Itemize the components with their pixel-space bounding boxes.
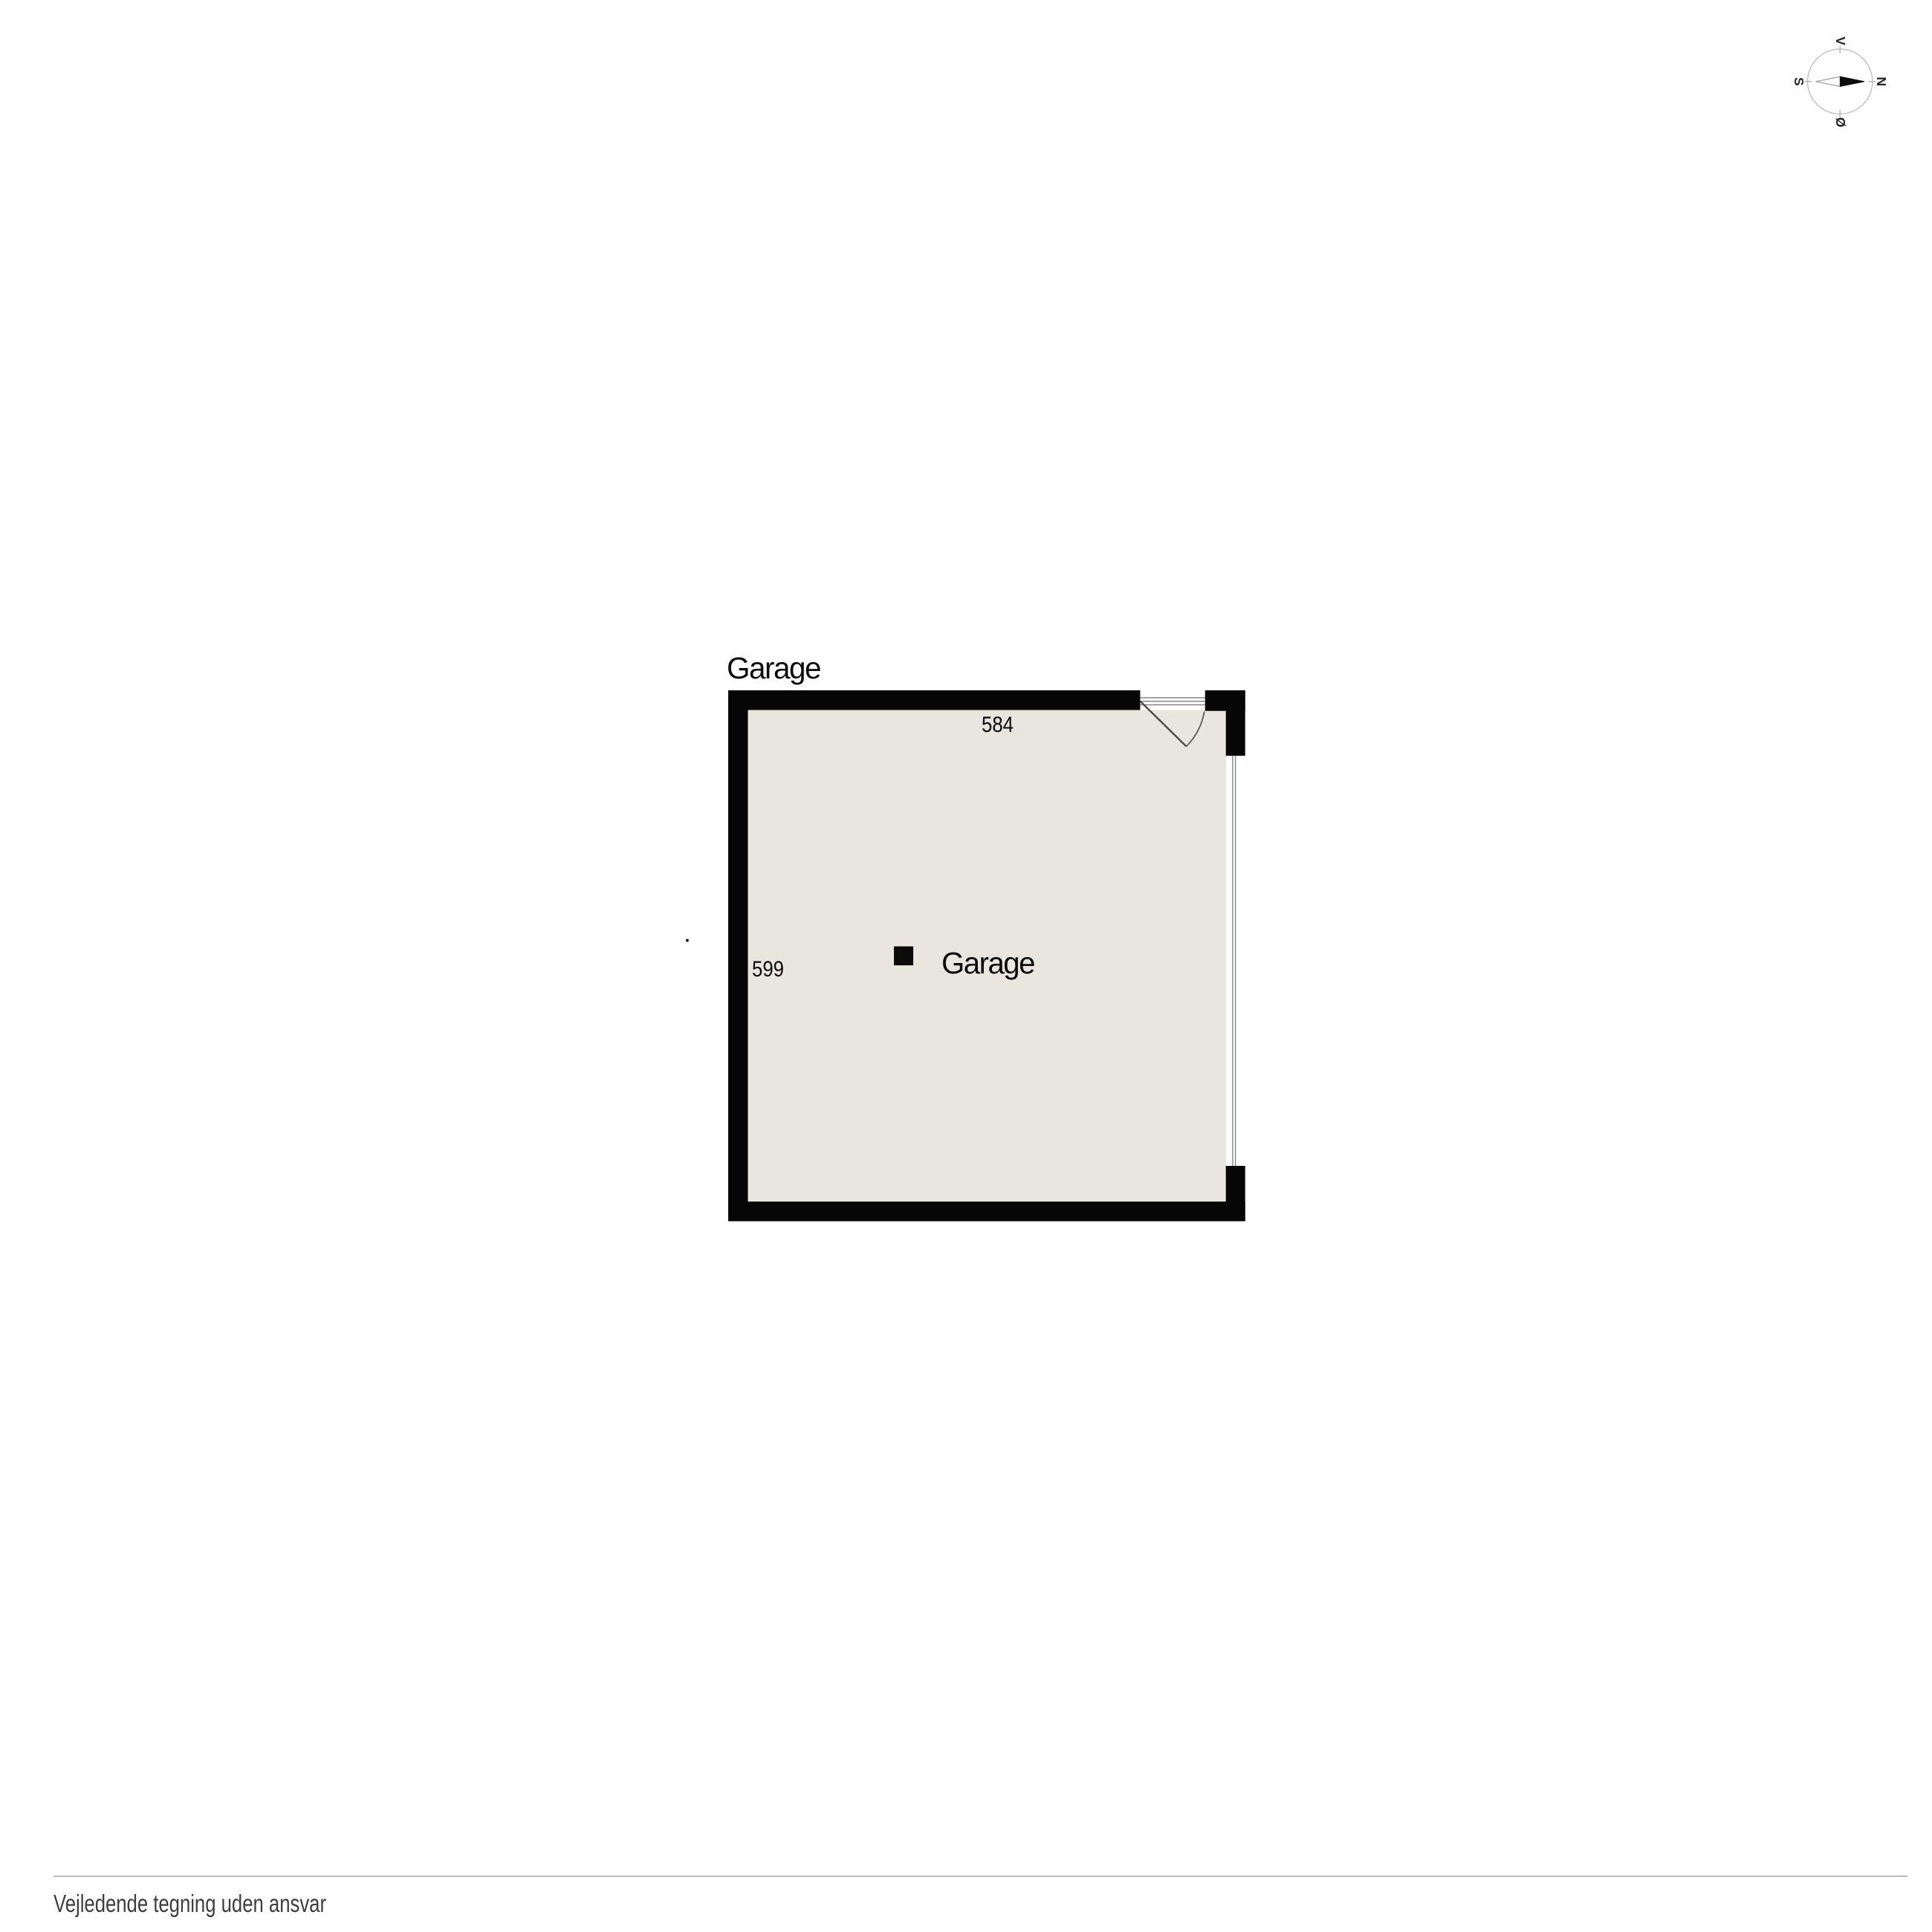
svg-text:Vejledende tegning uden ansvar: Vejledende tegning uden ansvar [54,1890,326,1917]
svg-text:Garage: Garage [727,651,820,685]
svg-text:Garage: Garage [941,946,1034,980]
svg-text:599: 599 [752,957,784,982]
svg-text:Ø: Ø [1833,117,1848,128]
svg-text:N: N [1874,77,1889,86]
svg-text:V: V [1833,36,1848,45]
svg-text:S: S [1792,77,1806,86]
svg-text:584: 584 [982,713,1014,737]
